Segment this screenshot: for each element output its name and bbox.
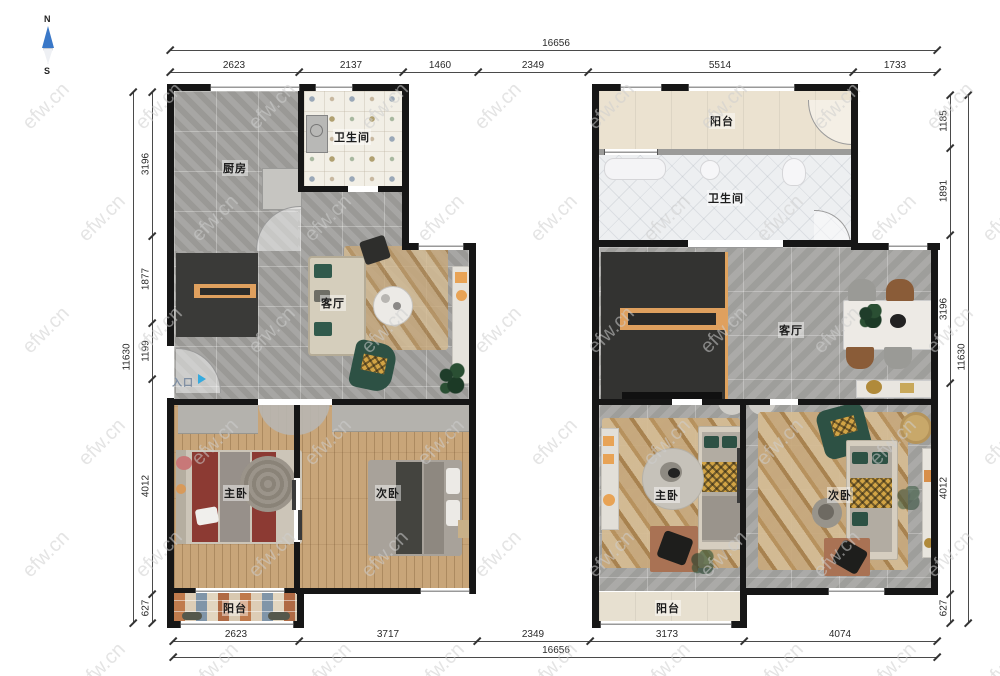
plant	[690, 550, 716, 574]
dim-bottom-seg0: 2623	[225, 629, 247, 640]
dim-left-seg0: 3196	[141, 153, 152, 175]
dim-top-seg4: 5514	[709, 60, 731, 71]
watermark: efw.cn	[470, 78, 526, 134]
dim-tick	[933, 637, 941, 645]
dim-line-top-total	[170, 50, 937, 51]
dim-tick	[148, 619, 156, 627]
room-label-balcony-top-f2: 阳台	[709, 113, 735, 129]
table-plate	[381, 294, 390, 303]
bed-blanket-gray	[424, 462, 444, 554]
dining-chair	[848, 279, 876, 301]
dim-tick	[129, 619, 137, 627]
watermark: efw.cn	[18, 526, 74, 582]
entrance-arrow-icon	[198, 374, 206, 384]
green-pillow	[852, 452, 868, 464]
dim-left-seg4: 627	[141, 600, 152, 617]
room-label-master-f2: 主卧	[654, 487, 680, 503]
dim-top-seg5: 1733	[884, 60, 906, 71]
watermark: efw.cn	[470, 302, 526, 358]
dim-top-seg0: 2623	[223, 60, 245, 71]
tv-shelf-inner	[200, 288, 250, 295]
dim-top-seg2: 1460	[429, 60, 451, 71]
floor1-void	[404, 186, 471, 243]
dim-right-seg0: 1185	[939, 110, 950, 132]
dim-right-seg1: 1891	[939, 180, 950, 202]
watermark: efw.cn	[74, 414, 130, 470]
balcony-plant	[268, 612, 290, 620]
room-label-balcony-bottom-f2: 阳台	[655, 600, 681, 616]
gold-pouf	[900, 412, 932, 444]
desk-item	[603, 454, 614, 464]
dim-bottom-seg2: 2349	[522, 629, 544, 640]
zigzag-blanket	[702, 462, 740, 492]
dim-tick	[933, 46, 941, 54]
compass-north-label: N	[44, 14, 51, 24]
table-bowl	[890, 314, 906, 328]
frame	[900, 383, 914, 393]
dim-bottom-seg3: 3173	[656, 629, 678, 640]
watermark: efw.cn	[865, 190, 921, 246]
desk-item	[603, 494, 615, 506]
dim-bottom-seg4: 4074	[829, 629, 851, 640]
watermark: efw.cn	[18, 302, 74, 358]
watermark: efw.cn	[470, 526, 526, 582]
watermark: efw.cn	[978, 638, 1000, 676]
dim-line-left-segments	[152, 92, 153, 623]
bed-blanket-dark	[396, 462, 422, 554]
dim-right-seg2: 3196	[939, 298, 950, 320]
table-item	[668, 468, 680, 478]
dim-tick	[933, 653, 941, 661]
dim-line-bottom-total	[173, 657, 937, 658]
table-plate	[393, 302, 401, 310]
sink	[700, 160, 720, 180]
watermark: efw.cn	[526, 190, 582, 246]
room-label-living-f1: 客厅	[320, 295, 346, 311]
dim-line-right-total	[968, 95, 969, 623]
round-rug	[240, 456, 296, 512]
dim-left-total: 11630	[122, 343, 133, 370]
nightstand	[458, 520, 469, 538]
dining-chair	[886, 279, 914, 301]
dim-line-top-segments	[170, 72, 937, 73]
plant	[896, 486, 922, 510]
dim-right-seg3: 4012	[939, 477, 950, 499]
dim-line-right-segments	[950, 95, 951, 623]
green-pillow	[852, 512, 868, 526]
dim-left-seg2: 1199	[141, 340, 152, 362]
green-pillow	[722, 436, 737, 448]
room-label-second-f1: 次卧	[375, 485, 401, 501]
watermark: efw.cn	[74, 638, 130, 676]
dining-chair	[884, 347, 912, 369]
dim-right-total: 11630	[957, 343, 968, 370]
room-label-kitchen-f1: 厨房	[222, 160, 248, 176]
zigzag-blanket	[850, 478, 892, 508]
compass-south-label: S	[44, 66, 50, 76]
room-label-second-f2: 次卧	[827, 487, 853, 503]
desk-item	[455, 272, 467, 283]
dim-left-seg1: 1877	[141, 268, 152, 290]
toilet	[782, 158, 806, 186]
floorplan-canvas: N S	[0, 0, 1000, 676]
bathtub	[604, 158, 666, 180]
watermark: efw.cn	[18, 78, 74, 134]
room-label-bathroom-f1: 卫生间	[333, 129, 371, 145]
entrance-label: 入口	[172, 374, 194, 389]
watermark: efw.cn	[978, 190, 1000, 246]
table-item	[818, 504, 834, 520]
watermark: efw.cn	[526, 414, 582, 470]
gold-plant	[866, 380, 882, 394]
dim-bottom-total: 16656	[542, 645, 570, 656]
dining-chair	[846, 347, 874, 369]
wardrobe-shelf-inner	[628, 313, 716, 325]
dim-line-left-total	[133, 92, 134, 623]
kitchen-counter	[262, 168, 302, 210]
dim-tick	[946, 619, 954, 627]
plant	[436, 360, 470, 398]
wardrobe-base	[622, 392, 722, 399]
dim-line-bottom-segments	[173, 641, 937, 642]
dim-left-seg3: 4012	[141, 475, 152, 497]
room-label-master-f1: 主卧	[223, 485, 249, 501]
sofa-pillow	[314, 264, 332, 278]
watermark: efw.cn	[74, 190, 130, 246]
room-label-bathroom-f2: 卫生间	[707, 190, 745, 206]
dim-tick	[964, 619, 972, 627]
dim-top-seg1: 2137	[340, 60, 362, 71]
balcony-plant	[182, 612, 202, 620]
desk-item	[456, 290, 467, 301]
bed-blanket-gray	[702, 496, 740, 540]
green-pillow	[872, 452, 888, 464]
compass-south-needle-icon	[43, 48, 53, 64]
dim-bottom-seg1: 3717	[377, 629, 399, 640]
table-plant	[858, 304, 884, 328]
dim-tick	[933, 68, 941, 76]
room-label-living-f2: 客厅	[778, 322, 804, 338]
green-pillow	[704, 436, 719, 448]
room-label-balcony-f1: 阳台	[222, 600, 248, 616]
bed-pillow	[446, 468, 460, 494]
dim-right-seg4: 627	[939, 600, 950, 617]
dim-top-total: 16656	[542, 38, 570, 49]
desk-item	[603, 436, 614, 446]
washer-door	[310, 124, 323, 137]
flowers	[176, 456, 192, 470]
watermark: efw.cn	[978, 414, 1000, 470]
wardrobe-band	[332, 403, 470, 432]
pouf	[176, 484, 186, 494]
dim-top-seg3: 2349	[522, 60, 544, 71]
sofa-pillow	[314, 322, 332, 336]
bed-blanket-red	[192, 452, 218, 542]
wardrobe-band	[178, 403, 258, 434]
compass-icon	[42, 26, 54, 48]
